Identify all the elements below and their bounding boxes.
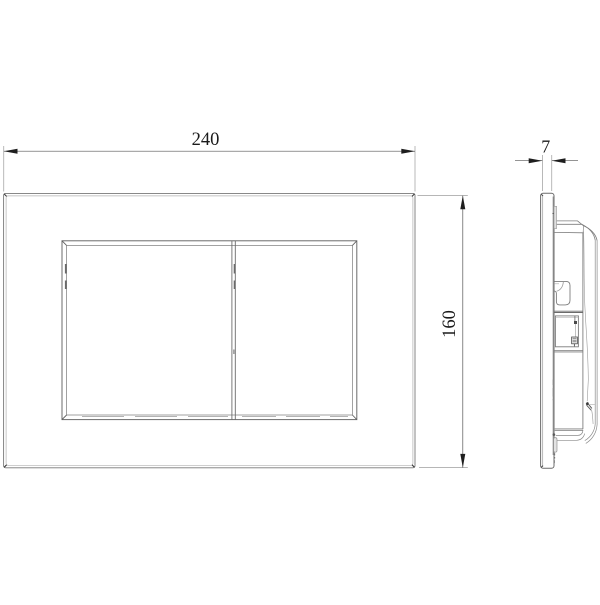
svg-text:7: 7: [541, 137, 550, 157]
svg-text:240: 240: [192, 130, 220, 150]
svg-text:160: 160: [440, 310, 460, 338]
